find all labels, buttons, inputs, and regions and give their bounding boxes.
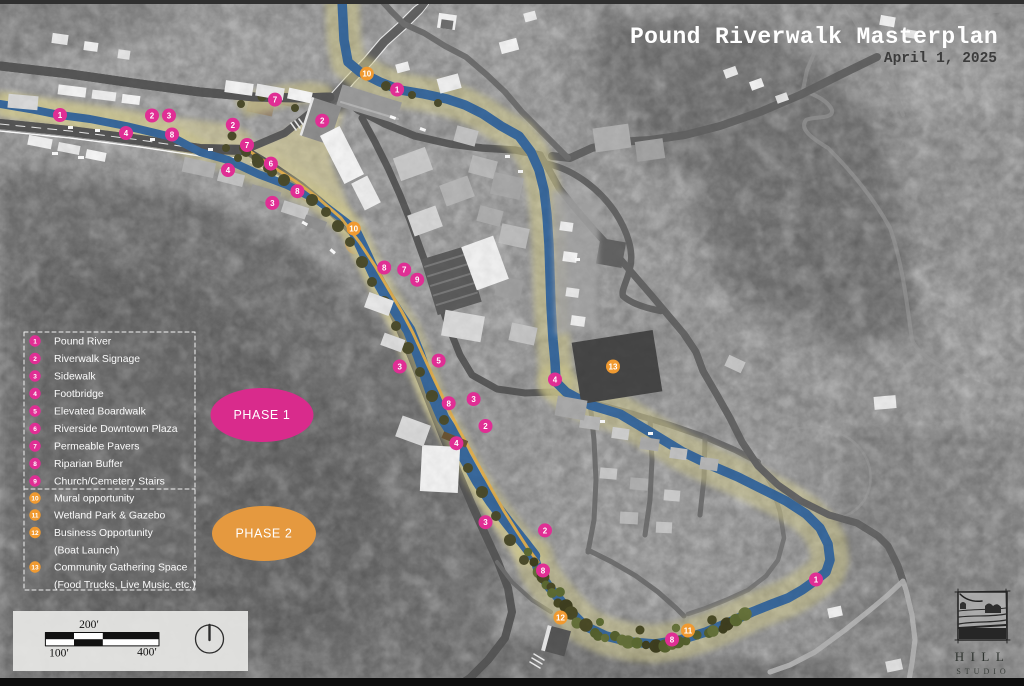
svg-text:Church/Cemetery Stairs: Church/Cemetery Stairs bbox=[54, 477, 165, 488]
svg-text:7: 7 bbox=[402, 266, 407, 275]
svg-text:11: 11 bbox=[32, 512, 39, 519]
svg-text:2: 2 bbox=[543, 526, 548, 535]
svg-text:STUDIO: STUDIO bbox=[956, 667, 1009, 676]
svg-text:3: 3 bbox=[33, 373, 37, 380]
svg-text:7: 7 bbox=[245, 141, 250, 150]
svg-text:Sidewalk: Sidewalk bbox=[54, 372, 96, 383]
svg-text:10: 10 bbox=[31, 495, 39, 502]
svg-text:Riverwalk Signage: Riverwalk Signage bbox=[54, 354, 140, 365]
svg-text:2: 2 bbox=[320, 117, 325, 126]
svg-text:2: 2 bbox=[150, 112, 155, 121]
svg-text:6: 6 bbox=[269, 160, 274, 169]
svg-text:11: 11 bbox=[684, 627, 693, 636]
svg-text:4: 4 bbox=[33, 391, 37, 398]
svg-text:Elevated Boardwalk: Elevated Boardwalk bbox=[54, 407, 147, 418]
svg-text:12: 12 bbox=[556, 614, 565, 623]
svg-text:Riverside Downtown Plaza: Riverside Downtown Plaza bbox=[54, 424, 178, 435]
svg-text:4: 4 bbox=[553, 376, 558, 385]
svg-text:200′: 200′ bbox=[79, 619, 99, 631]
svg-text:April 1, 2025: April 1, 2025 bbox=[884, 51, 997, 67]
svg-text:Pound River: Pound River bbox=[54, 337, 112, 348]
svg-text:7: 7 bbox=[33, 443, 37, 450]
svg-text:8: 8 bbox=[295, 187, 300, 196]
svg-text:3: 3 bbox=[397, 363, 402, 372]
svg-text:Wetland Park & Gazebo: Wetland Park & Gazebo bbox=[54, 511, 165, 522]
svg-text:8: 8 bbox=[446, 399, 451, 408]
svg-text:1: 1 bbox=[58, 111, 63, 120]
svg-text:13: 13 bbox=[609, 363, 618, 372]
svg-text:8: 8 bbox=[541, 567, 546, 576]
svg-text:10: 10 bbox=[362, 70, 371, 79]
svg-text:8: 8 bbox=[170, 131, 175, 140]
svg-text:Permeable Pavers: Permeable Pavers bbox=[54, 442, 139, 453]
svg-text:6: 6 bbox=[33, 426, 37, 433]
svg-text:4: 4 bbox=[124, 129, 129, 138]
svg-text:400′: 400′ bbox=[137, 647, 157, 659]
svg-text:10: 10 bbox=[349, 225, 358, 234]
svg-text:2: 2 bbox=[33, 356, 37, 363]
svg-text:Business Opportunity: Business Opportunity bbox=[54, 528, 154, 539]
svg-text:7: 7 bbox=[273, 96, 278, 105]
svg-text:2: 2 bbox=[483, 422, 488, 431]
svg-text:9: 9 bbox=[415, 276, 420, 285]
svg-text:1: 1 bbox=[395, 86, 400, 95]
svg-text:PHASE 2: PHASE 2 bbox=[235, 527, 292, 541]
svg-text:1: 1 bbox=[814, 576, 819, 585]
svg-text:9: 9 bbox=[33, 478, 37, 485]
svg-text:8: 8 bbox=[670, 636, 675, 645]
svg-text:2: 2 bbox=[231, 121, 236, 130]
svg-text:HILL: HILL bbox=[955, 649, 1011, 664]
svg-text:3: 3 bbox=[270, 199, 275, 208]
svg-text:Mural opportunity: Mural opportunity bbox=[54, 494, 135, 505]
svg-text:5: 5 bbox=[33, 408, 37, 415]
svg-text:13: 13 bbox=[31, 564, 39, 571]
svg-text:(Food Trucks, Live Music, etc.: (Food Trucks, Live Music, etc.) bbox=[54, 580, 195, 591]
svg-text:(Boat Launch): (Boat Launch) bbox=[54, 546, 119, 557]
svg-text:4: 4 bbox=[226, 166, 231, 175]
svg-text:3: 3 bbox=[483, 518, 488, 527]
svg-text:3: 3 bbox=[471, 395, 476, 404]
svg-text:100′: 100′ bbox=[49, 648, 69, 660]
svg-text:4: 4 bbox=[454, 439, 459, 448]
svg-text:PHASE 1: PHASE 1 bbox=[233, 408, 290, 422]
svg-text:Pound Riverwalk Masterplan: Pound Riverwalk Masterplan bbox=[630, 24, 998, 50]
svg-text:Riparian Buffer: Riparian Buffer bbox=[54, 459, 124, 470]
svg-text:Community Gathering Space: Community Gathering Space bbox=[54, 563, 188, 574]
svg-text:5: 5 bbox=[436, 357, 441, 366]
svg-text:1: 1 bbox=[33, 338, 37, 345]
svg-text:8: 8 bbox=[382, 264, 387, 273]
svg-text:8: 8 bbox=[33, 461, 37, 468]
svg-text:3: 3 bbox=[167, 112, 172, 121]
svg-text:12: 12 bbox=[31, 530, 39, 537]
svg-text:Footbridge: Footbridge bbox=[54, 389, 104, 400]
